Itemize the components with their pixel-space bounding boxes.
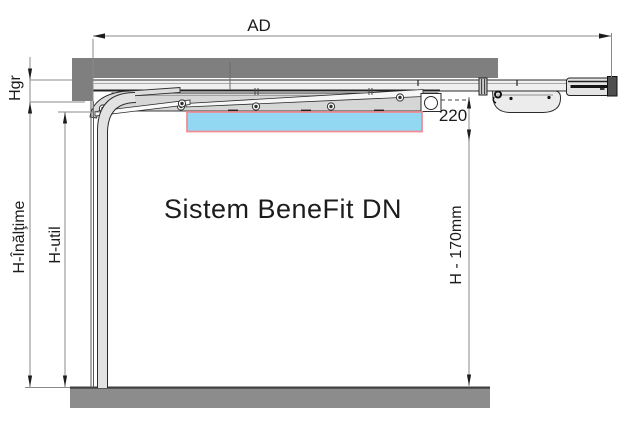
garage-door-diagram: AD Hgr H-Înălţime H-util 220 H - 170mm S… [0,0,624,430]
motor-dot-2 [547,96,550,99]
height-label: H-Înălţime [9,200,28,273]
floor-slab [70,388,490,408]
h-minus-170-label: H - 170mm [448,205,465,284]
h-util-arrow-down [63,376,67,388]
height-arrow-down [28,376,32,388]
hgr-arrow-up [28,102,32,114]
floor [25,387,490,409]
dimension-h-util: H-util [47,112,100,387]
leaf-inner-edge [108,103,137,389]
ad-arrow-left [93,33,105,38]
ad-label: AD [247,16,271,35]
h170-arrow-down [467,375,471,387]
floor-edge [70,387,490,389]
motor-housing [493,91,561,113]
drive-end-cap [608,77,618,97]
motor-dot-1 [509,97,512,100]
rail-bracket [479,78,487,95]
door-leaf [91,93,136,389]
ad-arrow-right [599,33,611,38]
ceiling-band [72,58,498,78]
pulley-circle [425,97,438,110]
dimension-left: Hgr H-Înălţime [7,57,85,387]
clearance-arrow-up [467,97,471,109]
h-util-arrow-up [63,112,67,124]
hgr-label: Hgr [7,74,24,100]
diagram-canvas: AD Hgr H-Înălţime H-util 220 H - 170mm S… [0,0,624,430]
system-title: Sistem BeneFit DN [164,194,402,224]
hgr-arrow-down [28,69,32,81]
drive-head-slot [571,85,608,88]
usable-height-label: H-util [47,226,64,263]
drive-head-notch [600,88,605,90]
dimension-right: 220 H - 170mm [439,97,471,386]
lintel-block [72,58,93,101]
clearance-220-label: 220 [439,106,467,125]
clearance-arrow-down [467,130,471,142]
highlighted-panel [187,112,422,132]
